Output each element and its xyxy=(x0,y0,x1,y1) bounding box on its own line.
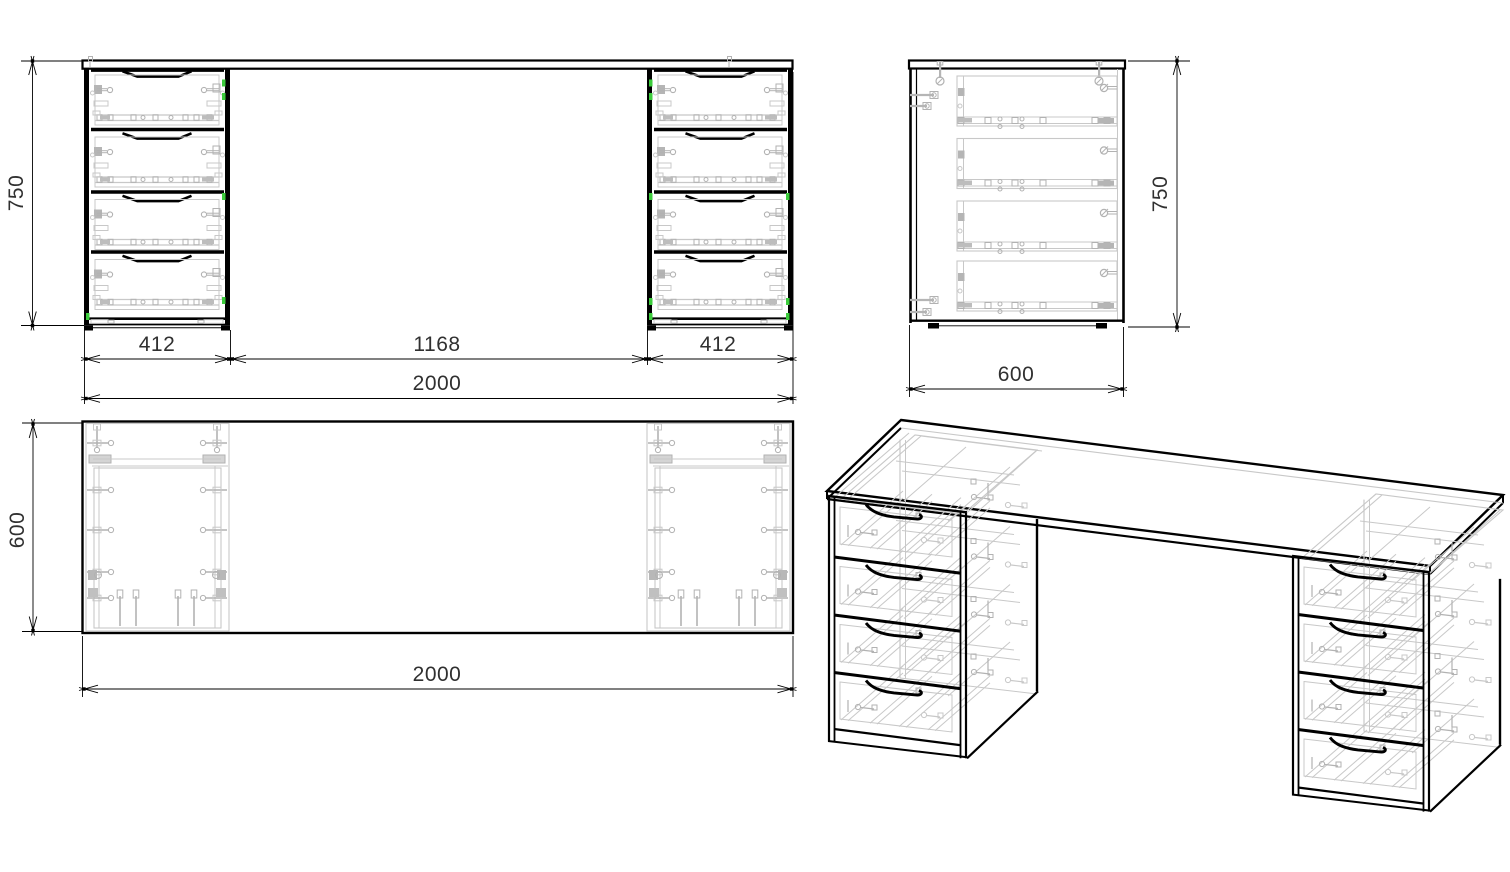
svg-text:600: 600 xyxy=(6,512,29,549)
svg-text:2000: 2000 xyxy=(413,372,462,395)
svg-text:412: 412 xyxy=(700,333,737,356)
svg-text:1168: 1168 xyxy=(413,333,460,356)
svg-text:412: 412 xyxy=(139,333,176,356)
svg-text:2000: 2000 xyxy=(413,663,462,686)
svg-text:600: 600 xyxy=(998,363,1035,386)
svg-text:750: 750 xyxy=(1149,176,1172,213)
svg-text:750: 750 xyxy=(5,175,28,212)
